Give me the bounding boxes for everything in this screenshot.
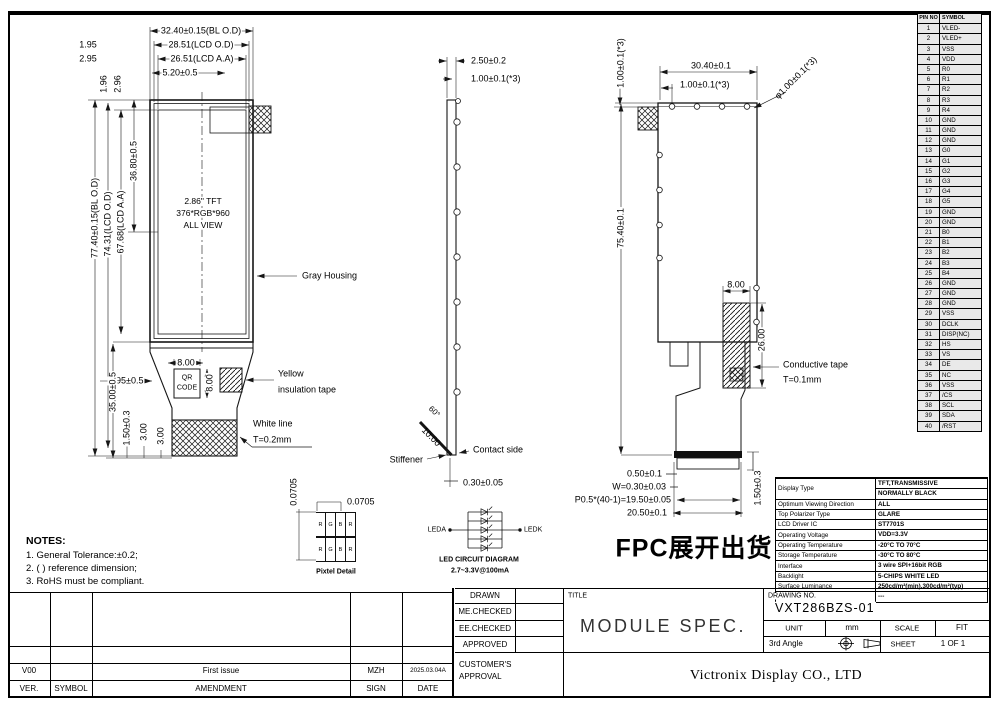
titleblock-line <box>825 620 826 636</box>
pin-number-cell: 32 <box>918 340 939 349</box>
titleblock-line <box>763 620 989 621</box>
pixel-cell: B <box>336 537 346 562</box>
drawing-no-value: VXT286BZS-01 <box>774 602 876 615</box>
sheet-title: MODULE SPEC. <box>579 617 747 635</box>
revision-line <box>8 646 452 647</box>
spec-label-cell: Display Type <box>776 479 876 499</box>
spec-row: Top Polarizer Type GLARE <box>776 509 987 519</box>
spec-row: Optimum Viewing Direction ALL <box>776 499 987 509</box>
pin-symbol-cell: R2 <box>940 85 981 94</box>
revision-amendment-value: First issue <box>202 667 240 675</box>
pin-symbol-cell: VSS <box>940 45 981 54</box>
dim-qr-width: 8.00 <box>176 359 196 368</box>
revision-ver-value: V00 <box>21 667 37 675</box>
third-angle-symbol <box>838 636 886 651</box>
pixel-row-2: RGBR <box>316 537 356 562</box>
title-label: TITLE <box>567 593 588 600</box>
pixel-detail-caption: Pixtel Detail <box>315 569 357 576</box>
titleblock-line <box>563 588 564 698</box>
pin-symbol-cell: VSS <box>940 309 981 318</box>
pin-symbol-cell: DISP(NC) <box>940 330 981 339</box>
qr-code-text-2: CODE <box>176 385 198 392</box>
pin-symbol-cell: GND <box>940 208 981 217</box>
pin-number-cell: 35 <box>918 371 939 380</box>
dim-bl-od: 32.40±0.15(BL O.D) <box>160 27 242 36</box>
sign-label: ME.CHECKED <box>455 604 516 619</box>
dim-1-96: 1.96 <box>100 74 109 94</box>
spec-value-cell: 3 wire SPI+16bit RGB <box>876 561 987 570</box>
pin-number-cell: 27 <box>918 289 939 298</box>
pin-number-cell: 23 <box>918 248 939 257</box>
revision-line <box>8 592 452 593</box>
sign-row: ME.CHECKED <box>455 604 563 620</box>
pin-number-cell: 37 <box>918 391 939 400</box>
dim-height-lcd: 74.31(LCD O.D) <box>104 190 113 257</box>
dim-0-30: 0.30±0.05 <box>462 479 504 488</box>
dim-20-50: 20.50±0.1 <box>626 509 668 518</box>
dim-5-20: 5.20±0.5 <box>162 69 199 78</box>
yellow-tape-label-1: Yellow <box>277 370 305 379</box>
revision-line <box>92 592 93 698</box>
titleblock-line <box>452 588 454 698</box>
sign-label: EE.CHECKED <box>455 621 516 636</box>
pin-number-cell: 16 <box>918 177 939 186</box>
pin-symbol-cell: DE <box>940 360 981 369</box>
pin-number-cell: 9 <box>918 106 939 115</box>
sheet-value: 1 OF 1 <box>940 640 966 648</box>
contact-side-label: Contact side <box>472 446 524 455</box>
pin-symbol-cell: B4 <box>940 269 981 278</box>
dim-36-80: 36.80±0.5 <box>130 140 139 182</box>
pin-number-cell: 3 <box>918 45 939 54</box>
pin-number-cell: 17 <box>918 187 939 196</box>
sign-label: DRAWN <box>455 588 516 603</box>
approval-sign-table: DRAWN ME.CHECKED EE.CHECKED APPROVED <box>455 588 563 652</box>
dim-height-aa: 67.68(LCD A.A) <box>117 189 126 254</box>
pin-symbol-cell: G2 <box>940 167 981 176</box>
revision-header-sign: SIGN <box>365 685 387 693</box>
sign-value-empty <box>516 637 563 652</box>
revision-header-amendment: AMENDMENT <box>194 685 248 693</box>
spec-value-cell-2: NORMALLY BLACK <box>876 488 987 498</box>
pin-symbol-cell: SDA <box>940 411 981 420</box>
panel-size-text: 2.86" TFT <box>183 197 222 206</box>
pixel-cell: R <box>316 512 326 537</box>
pin-number-cell: 21 <box>918 228 939 237</box>
pin-symbol-cell: G5 <box>940 197 981 206</box>
dim-2-96: 2.96 <box>114 74 123 94</box>
spec-label-cell: Top Polarizer Type <box>776 510 876 519</box>
revision-line <box>350 592 351 698</box>
sign-label: APPROVED <box>455 637 516 652</box>
pin-symbol-cell: R4 <box>940 106 981 115</box>
spec-value-cell: TFT,TRANSMISSIVE <box>876 479 987 488</box>
dim-2-50: 2.50±0.2 <box>470 57 507 66</box>
panel-view-text: ALL VIEW <box>183 221 224 230</box>
spec-value-cell: --- <box>876 592 987 601</box>
pin-number-cell: 34 <box>918 360 939 369</box>
pin-number-cell: 25 <box>918 269 939 278</box>
pin-symbol-cell: VLED+ <box>940 34 981 43</box>
panel-resolution-text: 376*RGB*960 <box>175 209 230 218</box>
pin-symbol-cell: G1 <box>940 157 981 166</box>
revision-header-ver: VER. <box>19 685 40 693</box>
sign-value-empty <box>516 621 563 636</box>
notes-block: NOTES: 1. General Tolerance:±0.2;2. ( ) … <box>26 535 144 588</box>
pin-number-cell: 36 <box>918 381 939 390</box>
pin-table: PIN NO SYMBOL 1 VLED- 2 VLED+ 3 VSS 4 VD… <box>917 13 982 432</box>
spec-value-cell: 5-CHIPS WHITE LED <box>876 572 987 581</box>
pin-symbol-cell: B1 <box>940 238 981 247</box>
pin-symbol-cell: GND <box>940 279 981 288</box>
pixel-row-1: RGBR <box>316 512 356 537</box>
spec-value-cell: ALL <box>876 500 987 509</box>
pin-symbol-cell: VLED- <box>940 24 981 33</box>
drawing-no-label: DRAWING NO. <box>767 593 817 600</box>
pin-symbol-cell: /RST <box>940 422 981 431</box>
pin-table-header-symbol: SYMBOL <box>940 14 981 23</box>
notes-title: NOTES: <box>26 535 144 547</box>
pin-number-cell: 40 <box>918 422 939 431</box>
customer-approval-label: CUSTOMER'S APPROVAL <box>459 659 545 682</box>
pixel-cell: R <box>316 537 326 562</box>
scale-label: SCALE <box>894 624 921 632</box>
led-anode-label: LEDA <box>427 527 447 534</box>
dim-lcd-aa: 26.51(LCD A.A) <box>169 55 234 64</box>
pin-number-cell: 14 <box>918 157 939 166</box>
dim-qr-height: 8.00 <box>206 373 215 393</box>
dim-3-00-a: 3.00 <box>140 422 149 442</box>
revision-line <box>402 592 403 698</box>
dim-0-50: 0.50±0.1 <box>626 470 663 479</box>
dim-1-00-left: 1.00±0.1(*3) <box>617 37 626 88</box>
pin-number-cell: 31 <box>918 330 939 339</box>
dim-1-95: 1.95 <box>78 41 98 50</box>
spec-label-cell: Operating Temperature <box>776 541 876 550</box>
pixel-cell: G <box>326 537 336 562</box>
revision-line <box>8 680 452 681</box>
stiffener-label: Stiffener <box>389 456 424 465</box>
pin-number-cell: 13 <box>918 146 939 155</box>
spec-row: Backlight 5-CHIPS WHITE LED <box>776 571 987 581</box>
pin-number-cell: 2 <box>918 34 939 43</box>
spec-row: Display Type TFT,TRANSMISSIVE NORMALLY B… <box>776 478 987 499</box>
pin-number-cell: 8 <box>918 96 939 105</box>
sheet-label: SHEET <box>889 640 916 648</box>
white-line-label-1: White line <box>252 420 294 429</box>
dim-8-00-tape: 8.00 <box>726 281 746 290</box>
led-diagram-title: LED CIRCUIT DIAGRAM <box>438 557 520 564</box>
pin-number-cell: 39 <box>918 411 939 420</box>
pin-symbol-cell: R3 <box>940 96 981 105</box>
dim-lcd-od: 28.51(LCD O.D) <box>167 41 234 50</box>
dim-1-00-side: 1.00±0.1(*3) <box>470 75 521 84</box>
pixel-cell: R <box>346 537 356 562</box>
spec-label-cell: Surface Luminance <box>776 582 876 591</box>
sign-value-empty <box>516 604 563 619</box>
note-item: 3. RoHS must be compliant. <box>26 575 144 588</box>
scale-value: FIT <box>955 624 969 632</box>
pin-symbol-cell: GND <box>940 218 981 227</box>
pin-symbol-cell: /CS <box>940 391 981 400</box>
pin-symbol-cell: GND <box>940 299 981 308</box>
pin-symbol-cell: G3 <box>940 177 981 186</box>
dim-1-50: 1.50±0.3 <box>123 410 132 447</box>
revision-header-symbol: SYMBOL <box>53 685 88 693</box>
pin-number-cell: 4 <box>918 55 939 64</box>
pixel-dim-horizontal: 0.0705 <box>346 498 376 507</box>
pin-symbol-cell: VSS <box>940 381 981 390</box>
gray-housing-label: Gray Housing <box>301 272 358 281</box>
titleblock-line <box>935 620 936 636</box>
spec-value-cell: VDD=3.3V <box>876 530 987 539</box>
led-diagram-rating: 2.7~3.3V@100mA <box>450 568 510 575</box>
pin-symbol-cell: B2 <box>940 248 981 257</box>
pin-symbol-cell: HS <box>940 340 981 349</box>
spec-value-cell: 250cd/m²(min),300cd/m²(typ) <box>876 582 987 591</box>
revision-line <box>8 663 452 664</box>
dim-w-0-30: W=0.30±0.03 <box>611 483 667 492</box>
pin-symbol-cell: GND <box>940 116 981 125</box>
pin-number-cell: 22 <box>918 238 939 247</box>
spec-value-cell: -30°C TO 80°C <box>876 551 987 560</box>
conductive-tape-label-1: Conductive tape <box>782 361 849 370</box>
pin-symbol-cell: DCLK <box>940 320 981 329</box>
pixel-dim-vertical: 0.0705 <box>290 477 299 507</box>
dim-30-40: 30.40±0.1 <box>690 62 732 71</box>
pin-number-cell: 33 <box>918 350 939 359</box>
spec-row: Interface 3 wire SPI+16bit RGB <box>776 560 987 570</box>
revision-sign-value: MZH <box>366 667 385 675</box>
pin-symbol-cell: B3 <box>940 259 981 268</box>
conductive-tape-label-2: T=0.1mm <box>782 376 822 385</box>
pin-number-cell: 11 <box>918 126 939 135</box>
spec-row: Storage Temperature -30°C TO 80°C <box>776 550 987 560</box>
dim-1-50-fpc: 1.50±0.3 <box>754 470 763 507</box>
yellow-tape-label-2: insulation tape <box>277 386 337 395</box>
pin-number-cell: 12 <box>918 136 939 145</box>
pin-symbol-cell: VS <box>940 350 981 359</box>
notes-list: 1. General Tolerance:±0.2;2. ( ) referen… <box>26 549 144 588</box>
pin-symbol-cell: G4 <box>940 187 981 196</box>
led-cathode-label: LEDK <box>523 527 543 534</box>
fpc-shipping-note: FPC展开出货 <box>614 537 773 562</box>
spec-table: Display Type TFT,TRANSMISSIVE NORMALLY B… <box>775 477 988 603</box>
spec-value-cell: GLARE <box>876 510 987 519</box>
pin-number-cell: 29 <box>918 309 939 318</box>
pin-symbol-cell: GND <box>940 289 981 298</box>
pin-symbol-cell: R0 <box>940 65 981 74</box>
spec-label-cell: Operating Voltage <box>776 530 876 539</box>
revision-header-date: DATE <box>417 685 440 693</box>
dim-75-40: 75.40±0.1 <box>617 207 626 249</box>
white-line-label-2: T=0.2mm <box>252 436 292 445</box>
pin-symbol-cell: GND <box>940 126 981 135</box>
pin-number-cell: 28 <box>918 299 939 308</box>
dim-1-00-top: 1.00±0.1(*3) <box>679 81 730 90</box>
pin-symbol-cell: SCL <box>940 401 981 410</box>
pin-number-cell: 10 <box>918 116 939 125</box>
spec-row: Surface Luminance 250cd/m²(min),300cd/m²… <box>776 581 987 591</box>
pin-symbol-cell: B0 <box>940 228 981 237</box>
pin-number-cell: 26 <box>918 279 939 288</box>
spec-row: Operating Voltage VDD=3.3V <box>776 529 987 539</box>
projection-angle-label: 3rd Angle <box>768 640 804 648</box>
pin-number-cell: 1 <box>918 24 939 33</box>
sign-value-empty <box>516 588 563 603</box>
spec-row: Operating Temperature -20°C TO 70°C <box>776 540 987 550</box>
spec-label-cell: LCD Driver IC <box>776 520 876 529</box>
pin-symbol-cell: R1 <box>940 75 981 84</box>
dim-26-00: 26.00 <box>758 328 767 353</box>
pixel-cell: G <box>326 512 336 537</box>
pin-number-cell: 20 <box>918 218 939 227</box>
revision-line <box>50 592 51 698</box>
pin-table-header-no: PIN NO <box>918 14 939 23</box>
sign-row: APPROVED <box>455 637 563 652</box>
pin-number-cell: 19 <box>918 208 939 217</box>
pin-number-cell: 7 <box>918 85 939 94</box>
sign-row: DRAWN <box>455 588 563 604</box>
note-item: 2. ( ) reference dimension; <box>26 562 144 575</box>
sign-row: EE.CHECKED <box>455 621 563 637</box>
pin-number-cell: 6 <box>918 75 939 84</box>
dim-2-95: 2.95 <box>78 55 98 64</box>
titleblock-line <box>455 652 989 653</box>
company-name: Victronix Display CO., LTD <box>689 669 863 683</box>
unit-label: UNIT <box>784 624 804 632</box>
spec-label-cell: Backlight <box>776 572 876 581</box>
pin-symbol-cell: VDD <box>940 55 981 64</box>
pin-number-cell: 18 <box>918 197 939 206</box>
spec-value-cell: -20°C TO 70°C <box>876 541 987 550</box>
unit-value: mm <box>844 624 859 632</box>
note-item: 1. General Tolerance:±0.2; <box>26 549 144 562</box>
pin-symbol-cell: G0 <box>940 146 981 155</box>
dim-pitch: P0.5*(40-1)=19.50±0.05 <box>574 496 672 505</box>
revision-date-value: 2025.03.04A <box>409 668 447 674</box>
pin-number-cell: 5 <box>918 65 939 74</box>
pin-symbol-cell: NC <box>940 371 981 380</box>
pin-number-cell: 38 <box>918 401 939 410</box>
pin-number-cell: 30 <box>918 320 939 329</box>
pin-number-cell: 24 <box>918 259 939 268</box>
spec-label-cell: Optimum Viewing Direction <box>776 500 876 509</box>
dim-height-bl: 77.40±0.15(BL O.D) <box>91 177 100 259</box>
qr-code-text-1: QR <box>181 375 194 382</box>
pin-number-cell: 15 <box>918 167 939 176</box>
spec-label-cell: Interface <box>776 561 876 570</box>
drawing-sheet: 32.40±0.15(BL O.D) 1.95 28.51(LCD O.D) 2… <box>0 0 1000 716</box>
dim-35-00: 35.00±0.5 <box>109 371 118 413</box>
pixel-cell: B <box>336 512 346 537</box>
spec-row: LCD Driver IC ST7701S <box>776 519 987 529</box>
dim-3-00-b: 3.00 <box>157 426 166 446</box>
pixel-cell: R <box>346 512 356 537</box>
spec-value-cell: ST7701S <box>876 520 987 529</box>
spec-label-cell: Storage Temperature <box>776 551 876 560</box>
pin-symbol-cell: GND <box>940 136 981 145</box>
